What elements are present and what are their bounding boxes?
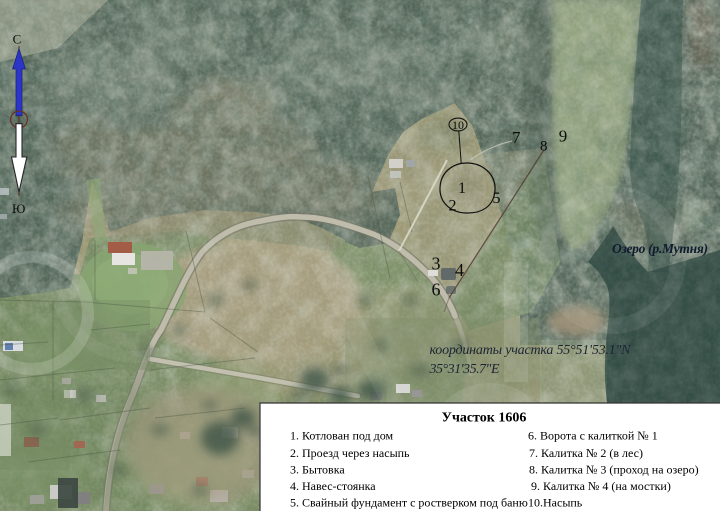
svg-text:9: 9 [559,127,568,146]
svg-text:1: 1 [458,180,466,197]
svg-text:7: 7 [512,128,521,147]
svg-text:4. Навес-стоянка: 4. Навес-стоянка [290,479,376,493]
svg-text:10.Насыпь: 10.Насыпь [528,495,583,509]
svg-text:С: С [13,32,22,47]
svg-text:Участок 1606: Участок 1606 [442,411,527,426]
svg-text:8: 8 [540,139,548,155]
svg-text:Озеро (р.Мутня): Озеро (р.Мутня) [612,241,708,256]
svg-text:1. Котлован под дом: 1. Котлован под дом [290,429,393,443]
svg-text:10: 10 [452,118,464,132]
svg-text:6. Ворота с калиткой № 1: 6. Ворота с калиткой № 1 [528,429,658,443]
svg-text:координаты участка 55°51'53.1": координаты участка 55°51'53.1"N [430,343,632,358]
svg-text:35°31'35.7"E: 35°31'35.7"E [429,362,500,377]
svg-text:7. Калитка № 2 (в лес): 7. Калитка № 2 (в лес) [529,446,643,460]
svg-text:9. Калитка № 4 (на мостки): 9. Калитка № 4 (на мостки) [531,479,671,493]
svg-text:8. Калитка № 3 (проход на озер: 8. Калитка № 3 (проход на озеро) [529,463,699,477]
svg-text:5. Свайный фундамент с роствер: 5. Свайный фундамент с ростверком под ба… [290,495,528,509]
svg-text:3: 3 [432,254,441,274]
svg-text:Ю: Ю [12,201,25,216]
svg-text:6: 6 [432,280,441,300]
svg-text:3. Бытовка: 3. Бытовка [290,463,345,477]
svg-text:2. Проезд через насыпь: 2. Проезд через насыпь [290,446,410,460]
svg-text:2: 2 [449,198,457,215]
svg-text:4: 4 [455,260,464,280]
svg-text:5: 5 [493,190,501,207]
